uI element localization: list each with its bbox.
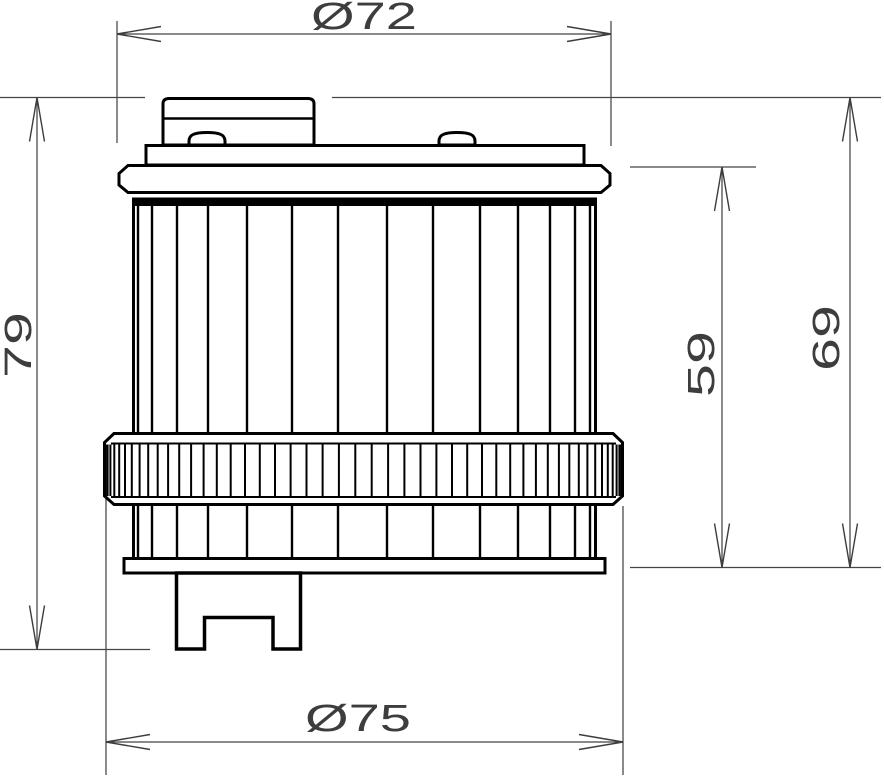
dimension-bottom-diameter: Ø75 xyxy=(106,698,623,750)
filter-part xyxy=(105,99,623,650)
filter-body-lower xyxy=(134,505,596,559)
dim-label-d75: Ø75 xyxy=(305,698,411,740)
drawing-canvas: Ø72 79 59 69 Ø75 xyxy=(0,0,884,777)
dim-label-59: 59 xyxy=(681,331,723,397)
right-nub xyxy=(439,133,475,146)
dimension-upper-height: 69 xyxy=(806,98,858,568)
dim-label-69: 69 xyxy=(806,305,848,371)
filter-technical-drawing: Ø72 79 59 69 Ø75 xyxy=(0,0,884,777)
dimension-body-height: 59 xyxy=(681,167,730,568)
filter-body-upper xyxy=(134,205,596,434)
dim-label-79: 79 xyxy=(0,312,40,378)
left-nub xyxy=(189,133,225,146)
top-plate xyxy=(146,146,584,166)
bottom-fitting xyxy=(177,573,301,649)
dimension-overall-height: 79 xyxy=(0,98,45,650)
dimension-top-diameter: Ø72 xyxy=(117,0,611,42)
mounting-block xyxy=(163,99,314,146)
dim-label-d72: Ø72 xyxy=(311,0,417,38)
top-cap xyxy=(119,166,610,193)
base-plate xyxy=(124,559,605,574)
